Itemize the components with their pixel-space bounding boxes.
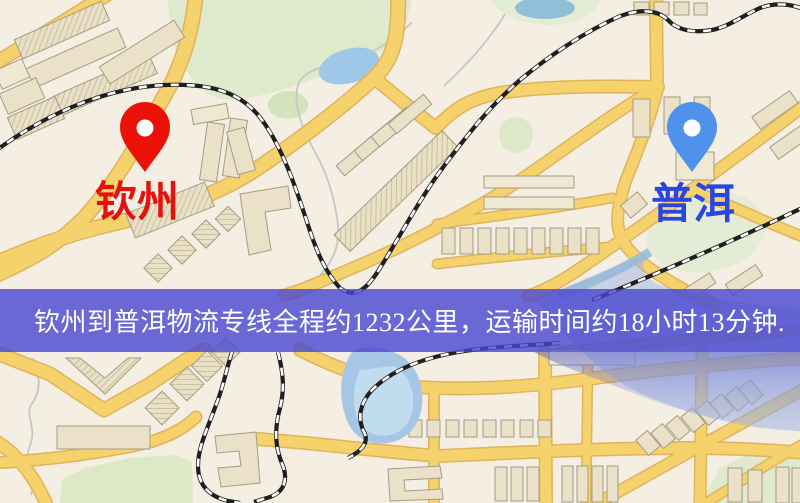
origin-city-label: 钦州 <box>95 179 179 226</box>
map-screenshot: 钦州 普洱 钦州到普洱物流专线全程约1232公里，运输时间约18小时13分钟. <box>0 0 800 503</box>
map-canvas[interactable]: 钦州 普洱 <box>0 0 800 503</box>
route-info-banner: 钦州到普洱物流专线全程约1232公里，运输时间约18小时13分钟. <box>0 289 800 352</box>
route-info-text: 钦州到普洱物流专线全程约1232公里，运输时间约18小时13分钟. <box>34 302 785 339</box>
destination-city-label: 普洱 <box>651 181 735 228</box>
